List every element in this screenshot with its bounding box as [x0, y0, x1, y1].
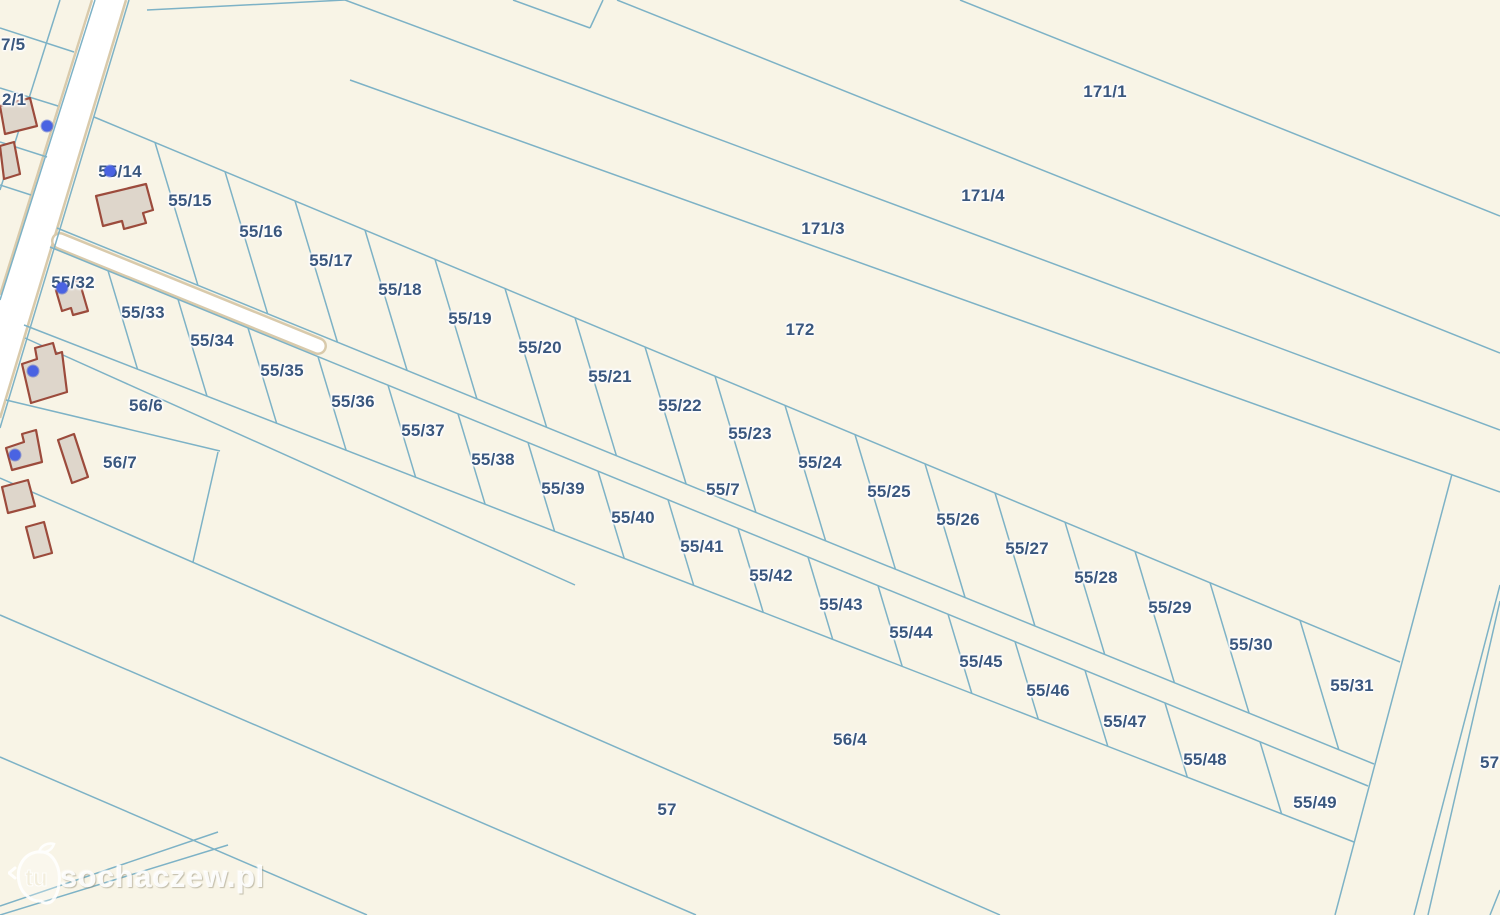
parcel-label-55-38: 55/38: [471, 450, 515, 470]
parcel-label-57: 57: [1480, 753, 1499, 773]
parcel-label-55-41: 55/41: [680, 537, 724, 557]
parcel-label-55-46: 55/46: [1026, 681, 1070, 701]
parcel-label-55-35: 55/35: [260, 361, 304, 381]
parcel-label-55-24: 55/24: [798, 453, 842, 473]
parcel-label-55-40: 55/40: [611, 508, 655, 528]
parcel-label-55-34: 55/34: [190, 331, 234, 351]
parcel-label-55-30: 55/30: [1229, 635, 1273, 655]
parcel-label-55-23: 55/23: [728, 424, 772, 444]
parcel-label-172: 172: [786, 320, 815, 340]
address-point-dot: [28, 366, 39, 377]
parcel-label-55-19: 55/19: [448, 309, 492, 329]
parcel-label-55-42: 55/42: [749, 566, 793, 586]
parcel-label-55-26: 55/26: [936, 510, 980, 530]
parcel-label-55-21: 55/21: [588, 367, 632, 387]
logo-site-text: sochaczew.pl: [60, 859, 265, 895]
parcel-label-55-7: 55/7: [706, 480, 740, 500]
parcel-label-55-37: 55/37: [401, 421, 445, 441]
sochaczew-logo: tu sochaczew.pl: [8, 842, 238, 912]
parcel-label-55-48: 55/48: [1183, 750, 1227, 770]
parcel-label-55-33: 55/33: [121, 303, 165, 323]
address-point-dot: [42, 121, 53, 132]
parcel-label-55-29: 55/29: [1148, 598, 1192, 618]
parcel-label-55-39: 55/39: [541, 479, 585, 499]
address-point-dot: [57, 283, 68, 294]
parcel-label-55-43: 55/43: [819, 595, 863, 615]
parcel-label-55-22: 55/22: [658, 396, 702, 416]
parcel-label-171-1: 171/1: [1083, 82, 1127, 102]
parcel-label-55-31: 55/31: [1330, 676, 1374, 696]
parcel-label-55-49: 55/49: [1293, 793, 1337, 813]
parcel-label-55-27: 55/27: [1005, 539, 1049, 559]
parcel-label-55-47: 55/47: [1103, 712, 1147, 732]
parcel-label-56-6: 56/6: [129, 396, 163, 416]
address-point-dot: [105, 166, 116, 177]
parcel-label-56-7: 56/7: [103, 453, 137, 473]
parcel-label-57: 57: [657, 800, 676, 820]
parcel-labels-layer: 55/1455/1555/1655/1755/1855/1955/2055/21…: [0, 0, 1500, 915]
parcel-label-55-25: 55/25: [867, 482, 911, 502]
parcel-label-55-16: 55/16: [239, 222, 283, 242]
parcel-label-171-4: 171/4: [961, 186, 1005, 206]
parcel-label-171-3: 171/3: [801, 219, 845, 239]
tu-badge-text: tu: [25, 865, 48, 892]
parcel-label-55-45: 55/45: [959, 652, 1003, 672]
map-canvas[interactable]: 55/1455/1555/1655/1755/1855/1955/2055/21…: [0, 0, 1500, 915]
parcel-label-55-36: 55/36: [331, 392, 375, 412]
parcel-label-2-1: 2/1: [2, 90, 26, 110]
parcel-label-55-20: 55/20: [518, 338, 562, 358]
parcel-label-55-28: 55/28: [1074, 568, 1118, 588]
parcel-label-55-17: 55/17: [309, 251, 353, 271]
address-point-dot: [10, 450, 21, 461]
parcel-label-55-15: 55/15: [168, 191, 212, 211]
parcel-label-7-5: 7/5: [1, 35, 25, 55]
parcel-label-55-18: 55/18: [378, 280, 422, 300]
parcel-label-55-44: 55/44: [889, 623, 933, 643]
parcel-label-56-4: 56/4: [833, 730, 867, 750]
